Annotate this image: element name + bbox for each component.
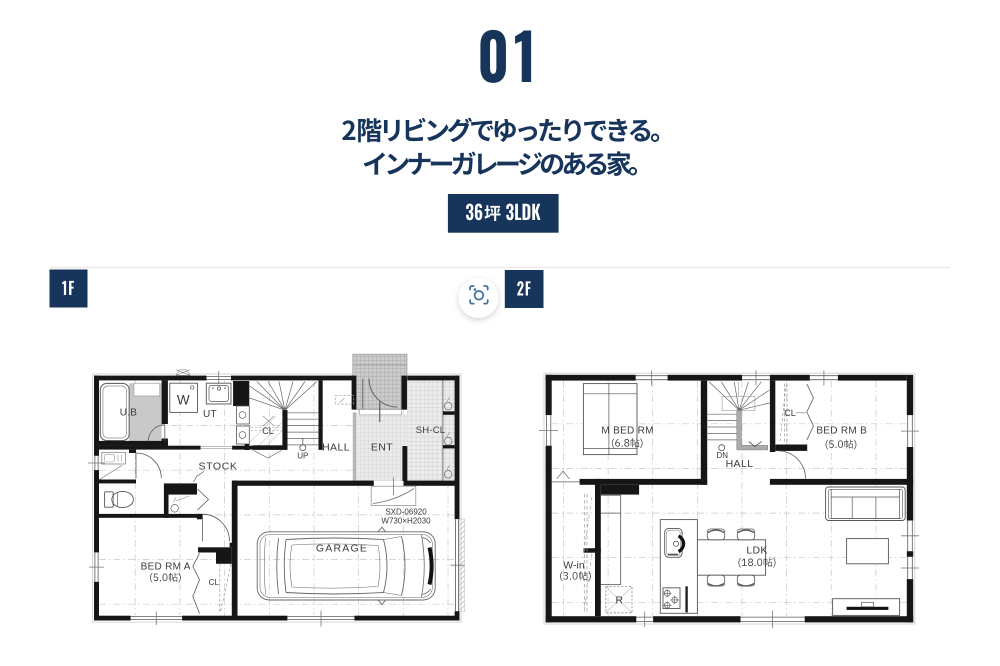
svg-text:UP: UP	[297, 451, 308, 460]
svg-text:HALL: HALL	[322, 442, 350, 454]
svg-text:W-in: W-in	[563, 559, 585, 571]
svg-text:BED RM B: BED RM B	[816, 425, 867, 436]
svg-text:W: W	[177, 393, 190, 408]
svg-text:W730×H2030: W730×H2030	[381, 517, 431, 526]
svg-text:STOCK: STOCK	[199, 460, 238, 472]
svg-text:CL: CL	[784, 408, 796, 418]
svg-text:CL: CL	[262, 426, 274, 436]
svg-text:HALL: HALL	[726, 458, 754, 470]
svg-text:U.B: U.B	[120, 408, 138, 419]
svg-text:CL: CL	[209, 578, 220, 587]
svg-text:ENT: ENT	[371, 442, 393, 454]
svg-text:SH-CL: SH-CL	[416, 425, 446, 436]
svg-text:M BED RM: M BED RM	[601, 426, 653, 437]
svg-text:R: R	[616, 595, 624, 607]
svg-text:SXD-06920: SXD-06920	[385, 508, 427, 517]
svg-text:LDK: LDK	[746, 544, 767, 556]
svg-text:BED RM A: BED RM A	[141, 562, 191, 573]
svg-text:UT: UT	[203, 409, 217, 420]
